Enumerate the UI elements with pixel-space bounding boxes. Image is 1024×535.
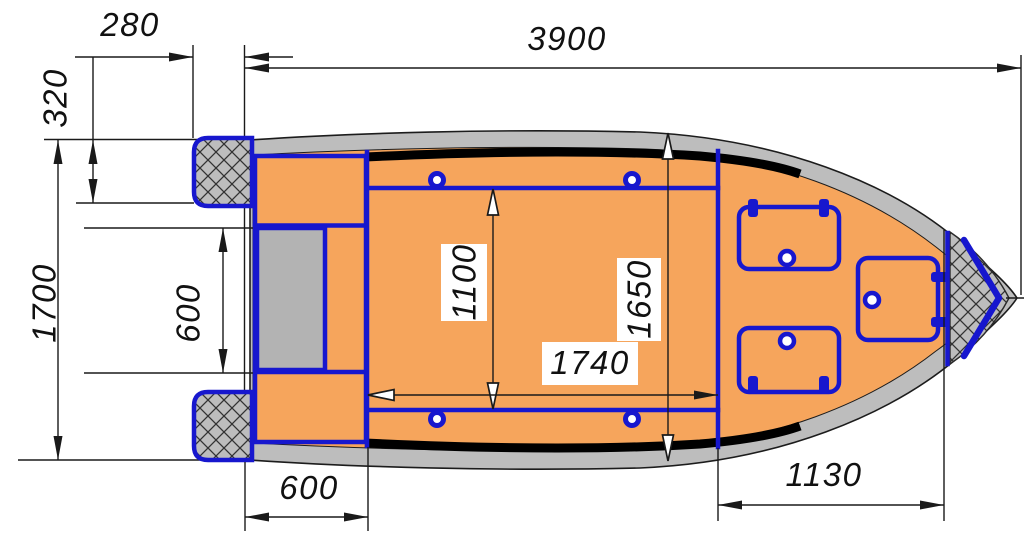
- dimension-600-motor-well: 600: [84, 228, 253, 373]
- hinge: [748, 376, 758, 394]
- arrowhead: [219, 228, 228, 252]
- drain-fitting: [626, 174, 639, 187]
- dim-label-1130: 1130: [786, 456, 863, 493]
- arrowhead: [997, 64, 1021, 73]
- arrowhead: [245, 64, 269, 73]
- arrowhead: [219, 349, 228, 373]
- hinge: [748, 199, 758, 217]
- drain-fitting: [431, 413, 444, 426]
- arrowhead: [169, 53, 193, 62]
- arrowhead: [54, 436, 63, 460]
- dim-label-600-aft-deck: 600: [279, 469, 339, 506]
- drain-fitting: [431, 174, 444, 187]
- arrowhead: [245, 53, 269, 62]
- hatch-handle: [865, 293, 879, 307]
- hatch-handle: [780, 251, 794, 265]
- transom-pad-bottom: [194, 392, 252, 460]
- dim-label-600-motor-well: 600: [170, 283, 207, 343]
- dim-label-1740: 1740: [550, 344, 629, 381]
- arrowhead: [245, 513, 269, 522]
- dimension-320: 320: [37, 57, 98, 203]
- dimension-1700: 1700: [26, 140, 63, 460]
- dim-label-1700: 1700: [26, 263, 63, 342]
- arrowhead: [89, 179, 98, 203]
- dimension-280: 280: [75, 6, 293, 62]
- arrowhead: [54, 140, 63, 164]
- arrowhead: [89, 140, 98, 164]
- dim-label-1100: 1100: [446, 244, 483, 321]
- drawing-canvas: 280 3900 320 1700 600: [0, 0, 1024, 535]
- dim-label-1650: 1650: [621, 259, 658, 338]
- hinge: [819, 199, 829, 217]
- dim-label-320: 320: [37, 68, 74, 128]
- drain-fitting: [626, 413, 639, 426]
- arrowhead: [920, 501, 944, 510]
- dim-label-3900: 3900: [527, 20, 606, 57]
- transom-pad-top: [194, 138, 252, 206]
- dim-label-280: 280: [99, 6, 160, 43]
- hatch-handle: [780, 334, 794, 348]
- hinge: [819, 376, 829, 394]
- boat-dimension-drawing: 280 3900 320 1700 600: [0, 0, 1024, 535]
- arrowhead: [344, 513, 368, 522]
- arrowhead: [718, 501, 742, 510]
- motor-well: [257, 228, 325, 370]
